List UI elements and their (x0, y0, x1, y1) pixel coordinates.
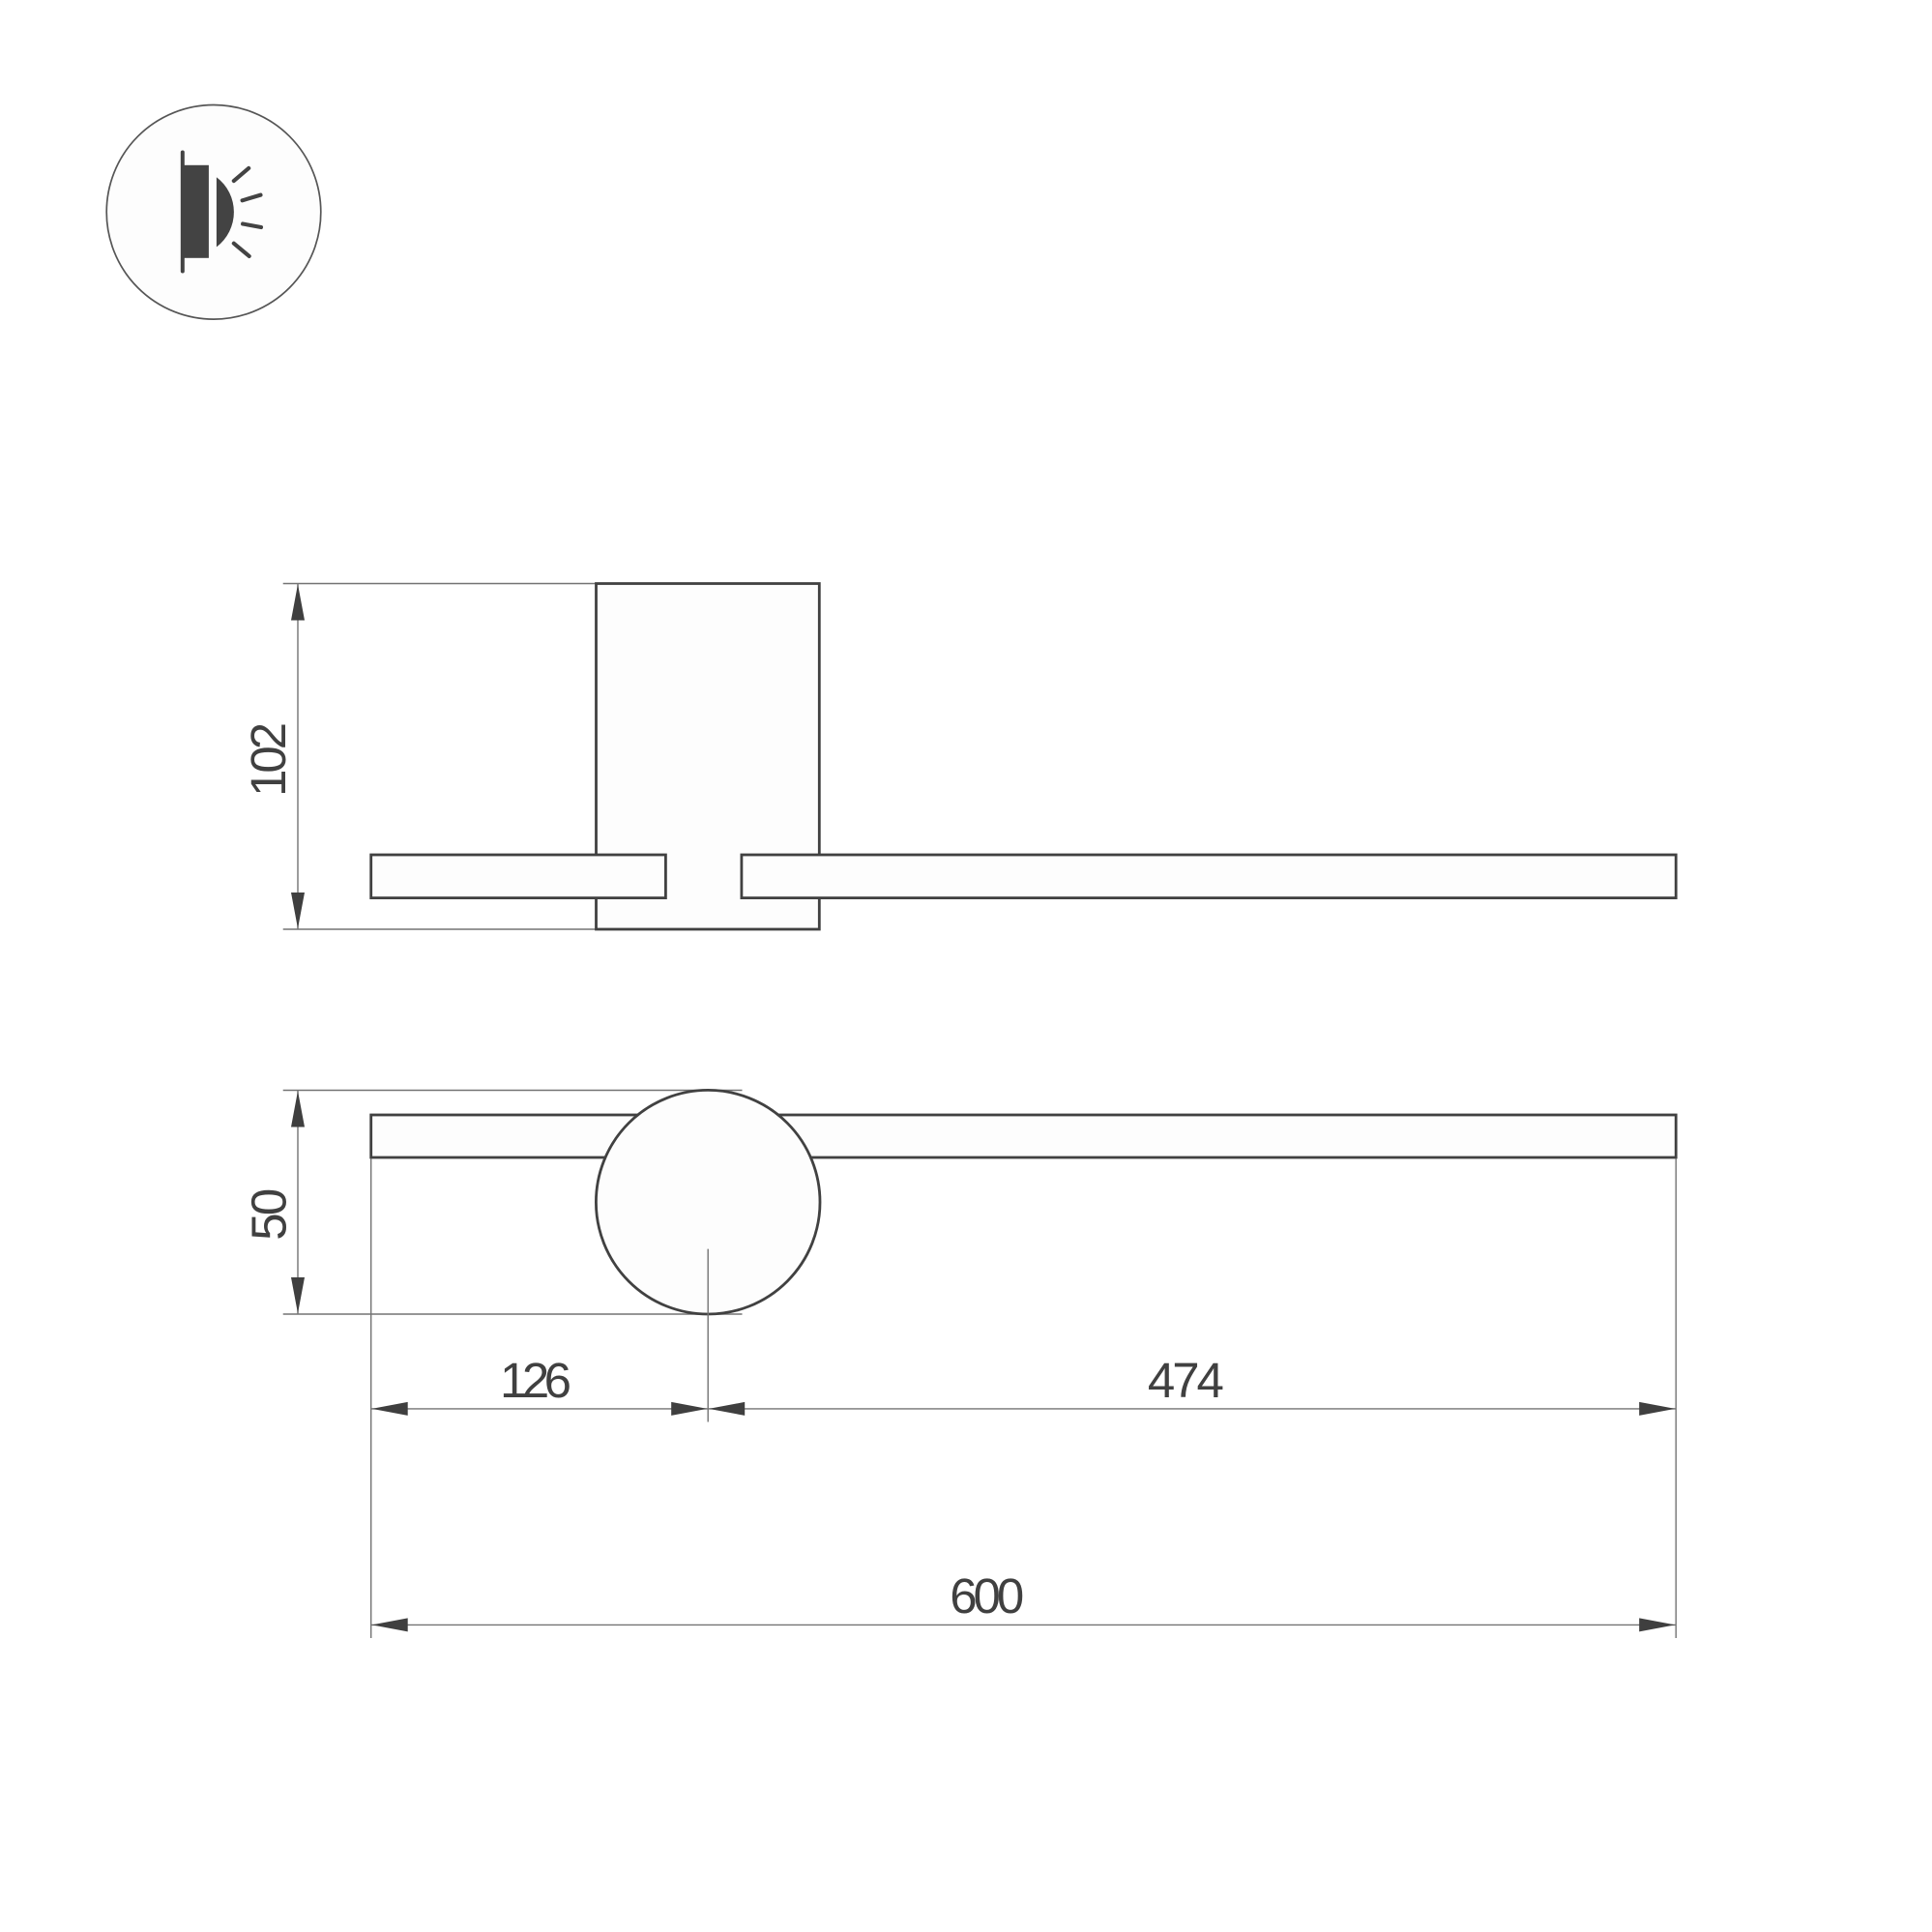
svg-text:126: 126 (500, 1353, 571, 1408)
svg-text:102: 102 (241, 722, 296, 797)
svg-text:50: 50 (241, 1188, 296, 1241)
svg-text:600: 600 (950, 1568, 1024, 1624)
svg-text:474: 474 (1148, 1353, 1224, 1408)
